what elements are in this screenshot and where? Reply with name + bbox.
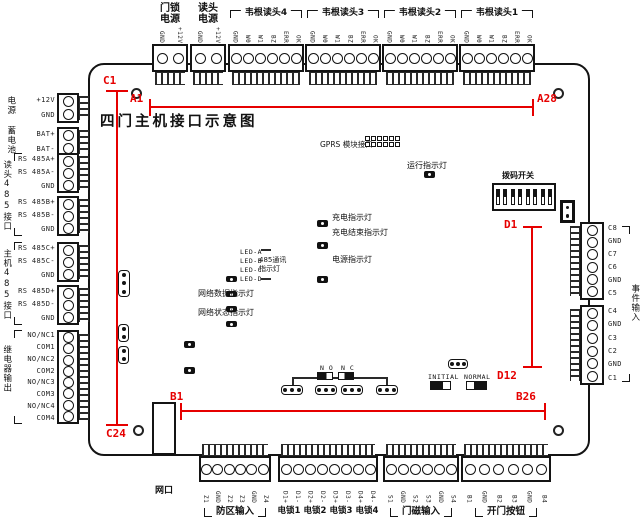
dip-slider bbox=[518, 189, 522, 205]
pin-labels: NO/NC1COM1NO/NC2COM2NO/NC3COM3NO/NC4COM4 bbox=[0, 330, 55, 424]
label-line: 电源 bbox=[152, 14, 188, 25]
pin-label: C3 bbox=[608, 335, 617, 342]
group-label-exit-button: 开门按钮 bbox=[461, 503, 551, 517]
edge-connector bbox=[79, 245, 89, 279]
label-line: 电源 bbox=[190, 14, 226, 25]
terminal-screw bbox=[462, 53, 473, 64]
edge-connector bbox=[309, 72, 377, 85]
dip-slider bbox=[526, 189, 530, 205]
terminal-block bbox=[57, 93, 79, 123]
terminal-screw bbox=[329, 464, 340, 475]
pin-label: C1 bbox=[608, 375, 617, 382]
terminal-screw bbox=[63, 269, 74, 280]
terminal-block bbox=[459, 44, 535, 72]
pin-label: BAT- bbox=[37, 146, 55, 153]
terminal-screw bbox=[63, 156, 74, 167]
pin-label: RS 485B+ bbox=[18, 199, 55, 206]
pin-labels: +12VGND bbox=[0, 93, 55, 123]
pin-label: ERR bbox=[513, 31, 519, 43]
pin-label: OK bbox=[372, 35, 378, 43]
terminal-screw bbox=[409, 53, 420, 64]
dip-slider bbox=[533, 189, 537, 205]
terminal-screw bbox=[344, 53, 355, 64]
ref-line-d bbox=[531, 226, 533, 368]
terminal-screw bbox=[587, 308, 598, 319]
terminal-screw bbox=[397, 53, 408, 64]
pin-label: D1- bbox=[294, 491, 300, 503]
terminal-screw bbox=[258, 464, 269, 475]
terminal-screw bbox=[63, 245, 74, 256]
edge-connector bbox=[463, 72, 531, 85]
connector-reader-power: 读头 电源 GND+12V bbox=[190, 2, 226, 86]
terminal-screw bbox=[224, 464, 235, 475]
normal-label: NORMAL bbox=[464, 373, 490, 381]
pin-label: OK bbox=[526, 35, 532, 43]
jumper-pin bbox=[350, 388, 354, 392]
pin-label: GND bbox=[231, 31, 237, 43]
pin-labels: GND+12V bbox=[152, 25, 188, 43]
edge-connector bbox=[386, 72, 454, 85]
terminal-screw bbox=[63, 312, 74, 323]
terminal-screw bbox=[201, 464, 212, 475]
normal-jumper-icon bbox=[466, 381, 487, 390]
edge-connector bbox=[464, 444, 548, 456]
bracket-corner bbox=[622, 226, 630, 234]
header-pin bbox=[395, 142, 400, 147]
connector-wiegand-reader-1: 韦根读头1 GNDW0W1BZERROK bbox=[459, 2, 535, 86]
pin-label: B1 bbox=[466, 495, 472, 503]
mounting-hole bbox=[133, 425, 144, 436]
terminal-ref-c1: C1 bbox=[103, 74, 116, 87]
pin-label: +12V bbox=[37, 97, 55, 104]
charge-led-label: 充电指示灯 bbox=[332, 212, 372, 223]
edge-connector bbox=[155, 72, 185, 85]
header-pin bbox=[389, 142, 394, 147]
dip-switch bbox=[492, 183, 556, 211]
pin-label: C8 bbox=[608, 225, 617, 232]
jumper-nc-label: N C bbox=[341, 364, 354, 372]
pin-label: Z1 bbox=[202, 495, 208, 503]
jumper-3pin bbox=[315, 385, 337, 395]
connector-label: 韦根读头1 bbox=[472, 5, 522, 18]
net-data-led-icon bbox=[184, 341, 195, 348]
jumper-3pin bbox=[448, 359, 468, 369]
pin-labels: D1+D1-D2+D2-D3+D3-D4+D4- bbox=[278, 484, 378, 503]
terminal-screw bbox=[434, 464, 445, 475]
mounting-hole bbox=[553, 425, 564, 436]
pin-label: COM1 bbox=[37, 344, 55, 351]
pin-label: C7 bbox=[608, 251, 617, 258]
label-bracket: 韦根读头3 bbox=[307, 10, 379, 18]
jumper-pin bbox=[378, 388, 382, 392]
pin-label: NO/NC3 bbox=[27, 379, 55, 386]
jumper-pin bbox=[324, 388, 328, 392]
terminal-ref-d12: D12 bbox=[497, 369, 517, 382]
run-led-label: 运行指示灯 bbox=[407, 160, 447, 171]
pin-label: GND bbox=[608, 238, 622, 245]
jumper-pin bbox=[122, 281, 126, 285]
pin-label: GND bbox=[608, 361, 622, 368]
pin-label: D1+ bbox=[281, 491, 287, 503]
ref-line-a-tick-right bbox=[532, 99, 534, 116]
pin-label: W0 bbox=[321, 35, 327, 43]
terminal-block bbox=[57, 242, 79, 282]
pin-label: S1 bbox=[386, 495, 392, 503]
jumper-pin bbox=[122, 327, 126, 331]
terminal-block bbox=[228, 44, 304, 72]
terminal-screw bbox=[587, 371, 598, 382]
group-label-lan: 网口 bbox=[150, 483, 178, 496]
terminal-screw bbox=[587, 249, 598, 260]
terminal-screw bbox=[522, 53, 533, 64]
terminal-screw bbox=[63, 257, 74, 268]
terminal-screw bbox=[308, 53, 319, 64]
edge-connector bbox=[386, 444, 456, 456]
terminal-screw bbox=[63, 199, 74, 210]
terminal-screw bbox=[293, 464, 304, 475]
terminal-screw bbox=[173, 53, 184, 64]
edge-connector bbox=[79, 130, 89, 154]
terminal-screw bbox=[267, 53, 278, 64]
terminal-screw bbox=[63, 211, 74, 222]
comm-led-group-label-2: 指示灯 bbox=[259, 264, 280, 274]
pin-label: D2- bbox=[319, 491, 325, 503]
pin-label: C5 bbox=[608, 290, 617, 297]
edge-connector bbox=[232, 72, 300, 85]
jumper-pin bbox=[343, 388, 347, 392]
ref-line-a bbox=[149, 106, 534, 108]
terminal-block bbox=[580, 305, 604, 385]
header-pin bbox=[377, 136, 382, 141]
terminal-screw bbox=[291, 53, 302, 64]
terminal-screw bbox=[587, 286, 598, 297]
pin-label: +12V bbox=[176, 27, 182, 43]
edge-connector bbox=[570, 309, 580, 381]
terminal-block bbox=[57, 153, 79, 193]
terminal-screw bbox=[320, 53, 331, 64]
terminal-ref-b26: B26 bbox=[516, 390, 536, 403]
pin-label: NO/NC2 bbox=[27, 356, 55, 363]
label-text: 门磁输入 bbox=[402, 503, 440, 517]
charge-done-led-label: 充电结束指示灯 bbox=[332, 227, 388, 238]
terminal-screw bbox=[386, 464, 397, 475]
comm-led-a-icon bbox=[226, 276, 237, 282]
terminal-screw bbox=[522, 464, 533, 475]
pin-label: ERR bbox=[436, 31, 442, 43]
terminal-screw bbox=[587, 320, 598, 331]
terminal-ref-d1: D1 bbox=[504, 218, 517, 231]
terminal-screw bbox=[465, 464, 476, 475]
terminal-ref-a1: A1 bbox=[130, 92, 143, 105]
jumper-no-label: N O bbox=[320, 364, 333, 372]
jumper-pin bbox=[450, 362, 454, 366]
jumper-3pin bbox=[281, 385, 303, 395]
pin-label: 电锁1 bbox=[278, 504, 301, 516]
edge-connector bbox=[79, 334, 89, 420]
terminal-screw bbox=[243, 53, 254, 64]
terminal-screw bbox=[63, 366, 74, 377]
bracket-corner bbox=[622, 374, 630, 382]
jumper-pin bbox=[122, 349, 126, 353]
jumper-pin bbox=[283, 388, 287, 392]
pin-labels: RS 485C+RS 485C-GND bbox=[0, 242, 55, 282]
terminal-screw bbox=[305, 464, 316, 475]
connector-label: 读头 电源 bbox=[190, 3, 226, 25]
dip-slider bbox=[503, 189, 507, 205]
terminal-screw bbox=[63, 223, 74, 234]
edge-connector bbox=[570, 226, 580, 296]
edge-connector bbox=[79, 288, 89, 322]
dip-slider bbox=[496, 189, 500, 205]
label-bracket: 韦根读头1 bbox=[461, 10, 533, 18]
label-bracket: 韦根读头2 bbox=[384, 10, 456, 18]
terminal-screw bbox=[63, 400, 74, 411]
edge-connector bbox=[79, 199, 89, 233]
charge-led-icon bbox=[317, 220, 328, 227]
terminal-screw bbox=[157, 53, 168, 64]
terminal-block bbox=[383, 456, 459, 482]
pin-label: ERR bbox=[282, 31, 288, 43]
net-status-led-label: 网络状态指示灯 bbox=[198, 307, 254, 318]
pin-label: GND bbox=[462, 31, 468, 43]
initial-jumper-icon bbox=[430, 381, 451, 390]
jumper-2pin bbox=[118, 324, 129, 342]
terminal-screw bbox=[410, 464, 421, 475]
terminal-screw bbox=[445, 53, 456, 64]
pin-labels: RS 485A+RS 485A-GND bbox=[0, 153, 55, 193]
pin-labels: GNDW0W1BZERROK bbox=[382, 24, 458, 43]
terminal-screw bbox=[479, 464, 490, 475]
jumper-nc-icon bbox=[338, 372, 354, 380]
pin-label: GND bbox=[250, 491, 256, 503]
terminal-screw bbox=[385, 53, 396, 64]
terminal-screw bbox=[63, 96, 74, 107]
pin-label: BZ bbox=[346, 35, 352, 43]
pin-label: OK bbox=[449, 35, 455, 43]
terminal-screw bbox=[63, 355, 74, 366]
pin-labels: GND+12V bbox=[190, 25, 226, 43]
wiring-diagram: 门锁 电源 GND+12V 读头 电源 GND+12V 韦根读头4 GNDW0W… bbox=[0, 0, 640, 518]
pin-label: D3+ bbox=[331, 491, 337, 503]
pin-labels: S1GNDS2S3GNDS4 bbox=[383, 484, 459, 503]
terminal-screw bbox=[63, 377, 74, 388]
terminal-screw bbox=[493, 464, 504, 475]
pin-label: GND bbox=[41, 272, 55, 279]
terminal-screw bbox=[356, 53, 367, 64]
pin-label: RS 485C- bbox=[18, 258, 55, 265]
header-pin bbox=[371, 142, 376, 147]
net-status-led-icon bbox=[184, 367, 195, 374]
terminal-screw bbox=[587, 346, 598, 357]
two-pin-header bbox=[560, 200, 575, 223]
terminal-screw bbox=[63, 388, 74, 399]
terminal-screw bbox=[212, 464, 223, 475]
jumper-pin bbox=[456, 362, 460, 366]
header-pin bbox=[395, 136, 400, 141]
edge-connector bbox=[193, 72, 223, 85]
pin-label: GND bbox=[41, 183, 55, 190]
charge-done-led-icon bbox=[317, 242, 328, 249]
terminal-screw bbox=[587, 358, 598, 369]
terminal-screw bbox=[341, 464, 352, 475]
jumper-2pin bbox=[118, 346, 129, 364]
terminal-block bbox=[152, 44, 188, 72]
jumper-pin bbox=[357, 388, 361, 392]
edge-connector bbox=[79, 96, 89, 120]
terminal-screw bbox=[63, 180, 74, 191]
terminal-screw bbox=[63, 168, 74, 179]
pin-labels: GNDW0W1BZERROK bbox=[459, 24, 535, 43]
diagram-title: 四门主机接口示意图 bbox=[100, 110, 258, 131]
terminal-ref-b1: B1 bbox=[170, 390, 183, 403]
terminal-screw bbox=[195, 53, 206, 64]
terminal-block bbox=[199, 456, 271, 482]
pin-label: GND bbox=[399, 491, 405, 503]
connector-label: 韦根读头4 bbox=[241, 5, 291, 18]
terminal-block bbox=[57, 196, 79, 236]
terminal-screw bbox=[474, 53, 485, 64]
pin-label: C2 bbox=[608, 348, 617, 355]
pin-label: ERR bbox=[359, 31, 365, 43]
terminal-screw bbox=[317, 464, 328, 475]
jumper-pin bbox=[297, 388, 301, 392]
pin-label: D4- bbox=[369, 491, 375, 503]
pin-label: RS 485D- bbox=[18, 301, 55, 308]
terminal-screw bbox=[63, 130, 74, 141]
ref-line-c-tick-bottom bbox=[106, 424, 128, 426]
pin-label: Z3 bbox=[238, 495, 244, 503]
header-pin bbox=[383, 136, 388, 141]
label-text: 防区输入 bbox=[216, 503, 254, 517]
terminal-screw bbox=[63, 288, 74, 299]
pin-label: NO/NC1 bbox=[27, 332, 55, 339]
jumper-pin bbox=[122, 290, 126, 294]
connector-wiegand-reader-3: 韦根读头3 GNDW0W1BZERROK bbox=[305, 2, 381, 86]
terminal-screw bbox=[332, 53, 343, 64]
pin-label: GND bbox=[196, 31, 202, 43]
pin-label: GND bbox=[214, 491, 220, 503]
jumper-pin bbox=[290, 388, 294, 392]
header-pin bbox=[383, 142, 388, 147]
terminal-block bbox=[305, 44, 381, 72]
pin-label: GND bbox=[158, 31, 164, 43]
pin-label: GND bbox=[41, 315, 55, 322]
pin-label: GND bbox=[608, 277, 622, 284]
header-pin bbox=[377, 142, 382, 147]
terminal-block bbox=[278, 456, 378, 482]
ref-line-d-tick-bottom bbox=[523, 366, 542, 368]
pin-label: GND bbox=[308, 31, 314, 43]
connector-lock-power: 门锁 电源 GND+12V bbox=[152, 2, 188, 86]
terminal-screw bbox=[446, 464, 457, 475]
terminal-screw bbox=[510, 53, 521, 64]
terminal-ref-a28: A28 bbox=[537, 92, 557, 105]
connector-wiegand-reader-2: 韦根读头2 GNDW0W1BZERROK bbox=[382, 2, 458, 86]
dip-slider bbox=[511, 189, 515, 205]
terminal-screw bbox=[231, 53, 242, 64]
jumper-no-icon bbox=[317, 372, 333, 380]
pin-label: Z2 bbox=[226, 495, 232, 503]
terminal-screw bbox=[63, 343, 74, 354]
terminal-block bbox=[57, 285, 79, 325]
group-labels-locks: 电锁1电锁2电锁3电锁4 bbox=[276, 504, 380, 516]
edge-connector bbox=[79, 156, 89, 190]
jumper-pin bbox=[317, 388, 321, 392]
pin-label: D2+ bbox=[306, 491, 312, 503]
pin-label: COM3 bbox=[37, 391, 55, 398]
header-pin bbox=[389, 136, 394, 141]
ref-line-b-tick-right bbox=[544, 403, 546, 420]
pin-labels: RS 485D+RS 485D-GND bbox=[0, 285, 55, 325]
terminal-screw bbox=[235, 464, 246, 475]
gprs-header bbox=[365, 136, 400, 147]
pin-label: RS 485B- bbox=[18, 212, 55, 219]
terminal-screw bbox=[536, 464, 547, 475]
pin-label: W1 bbox=[334, 35, 340, 43]
terminal-screw bbox=[433, 53, 444, 64]
pin-label: RS 485A- bbox=[18, 169, 55, 176]
pin-labels: RS 485B+RS 485B-GND bbox=[0, 196, 55, 236]
terminal-block bbox=[461, 456, 551, 482]
pin-label: GND bbox=[41, 112, 55, 119]
terminal-screw bbox=[587, 225, 598, 236]
ref-line-b bbox=[180, 410, 546, 412]
label-line: 门锁 bbox=[152, 3, 188, 14]
terminal-screw bbox=[587, 333, 598, 344]
terminal-screw bbox=[255, 53, 266, 64]
terminal-screw bbox=[63, 109, 74, 120]
edge-connector bbox=[202, 444, 268, 456]
pin-label: RS 485D+ bbox=[18, 288, 55, 295]
jumper-pin bbox=[462, 362, 466, 366]
pin-label: GND bbox=[41, 226, 55, 233]
terminal-block bbox=[57, 330, 79, 424]
header-pin bbox=[371, 136, 376, 141]
initial-label: INITIAL bbox=[428, 373, 459, 381]
run-led-icon bbox=[424, 171, 435, 178]
jumper-pin bbox=[566, 214, 570, 218]
pin-label: Z4 bbox=[262, 495, 268, 503]
pin-labels: GNDW0W1BZERROK bbox=[228, 24, 304, 43]
pin-label: W0 bbox=[475, 35, 481, 43]
terminal-screw bbox=[368, 53, 379, 64]
group-label-event-input: 事件输入 bbox=[629, 284, 639, 324]
terminal-screw bbox=[498, 53, 509, 64]
terminal-block bbox=[382, 44, 458, 72]
net-data-led-label: 网络数据指示灯 bbox=[198, 288, 254, 299]
dip-slider bbox=[541, 189, 545, 205]
jumper-3pin bbox=[341, 385, 363, 395]
pin-label: W0 bbox=[244, 35, 250, 43]
terminal-screw bbox=[63, 332, 74, 343]
jumper-3pin bbox=[376, 385, 398, 395]
pin-label: D3- bbox=[344, 491, 350, 503]
jumper-3pin bbox=[118, 270, 130, 297]
pin-labels: Z1GNDZ2Z3GNDZ4 bbox=[199, 484, 271, 503]
connector-wiegand-reader-4: 韦根读头4 GNDW0W1BZERROK bbox=[228, 2, 304, 86]
terminal-screw bbox=[398, 464, 409, 475]
pin-label: +12V bbox=[214, 27, 220, 43]
pin-label: C4 bbox=[608, 308, 617, 315]
pin-label: S4 bbox=[450, 495, 456, 503]
jumper-pin bbox=[122, 357, 126, 361]
jumper-pin bbox=[392, 388, 396, 392]
terminal-block bbox=[190, 44, 226, 72]
terminal-screw bbox=[279, 53, 290, 64]
terminal-screw bbox=[365, 464, 376, 475]
connector-label: 门锁 电源 bbox=[152, 3, 188, 25]
pin-label: COM4 bbox=[37, 415, 55, 422]
